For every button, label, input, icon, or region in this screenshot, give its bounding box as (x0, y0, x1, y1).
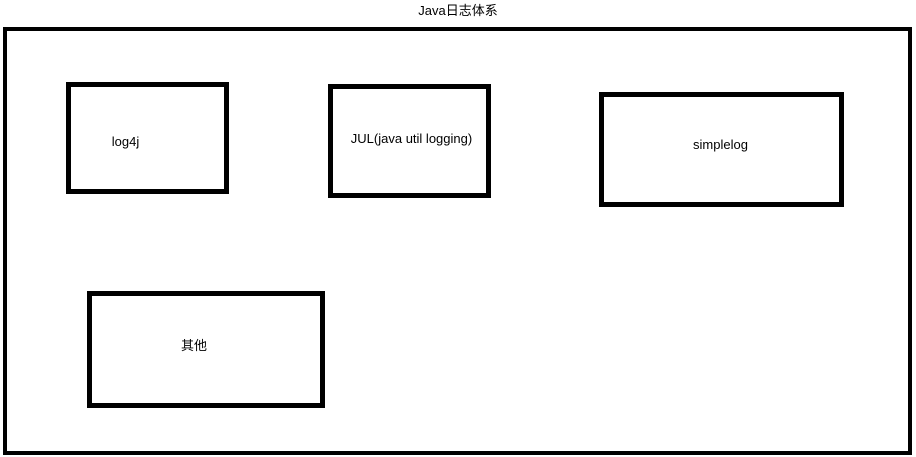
node-log4j[interactable]: log4j (66, 82, 229, 194)
node-other-label: 其他 (181, 335, 207, 354)
diagram-canvas: Java日志体系 log4j JUL(java util logging) si… (0, 0, 916, 457)
node-simplelog-label: simplelog (693, 137, 748, 152)
node-jul[interactable]: JUL(java util logging) (328, 84, 491, 198)
node-other[interactable]: 其他 (87, 291, 325, 408)
diagram-title: Java日志体系 (0, 3, 916, 19)
node-log4j-label: log4j (112, 134, 139, 149)
node-jul-label: JUL(java util logging) (351, 131, 472, 146)
node-simplelog[interactable]: simplelog (599, 92, 844, 207)
